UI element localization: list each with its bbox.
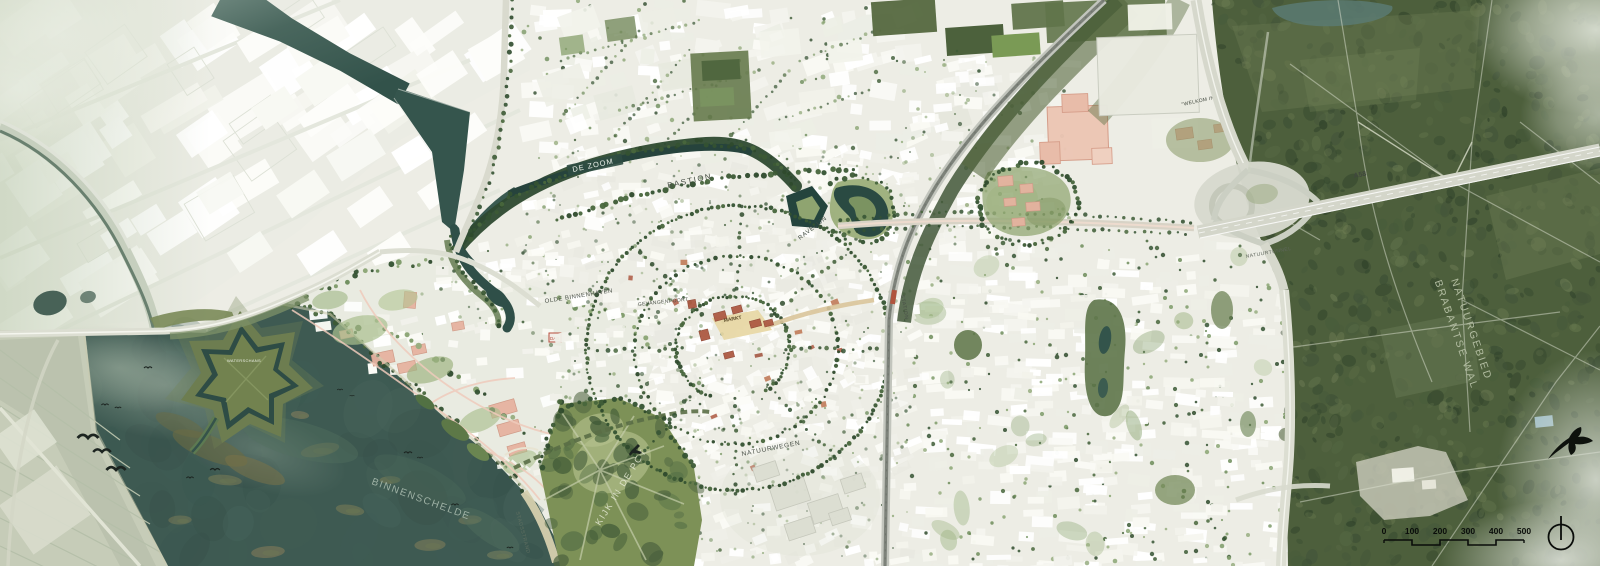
svg-text:500: 500 [1517,526,1531,536]
svg-text:300: 300 [1461,526,1475,536]
svg-text:400: 400 [1489,526,1503,536]
svg-text:200: 200 [1433,526,1447,536]
svg-text:0: 0 [1382,526,1387,536]
svg-text:100: 100 [1405,526,1419,536]
svg-text:WATERSCHANS: WATERSCHANS [227,358,261,363]
